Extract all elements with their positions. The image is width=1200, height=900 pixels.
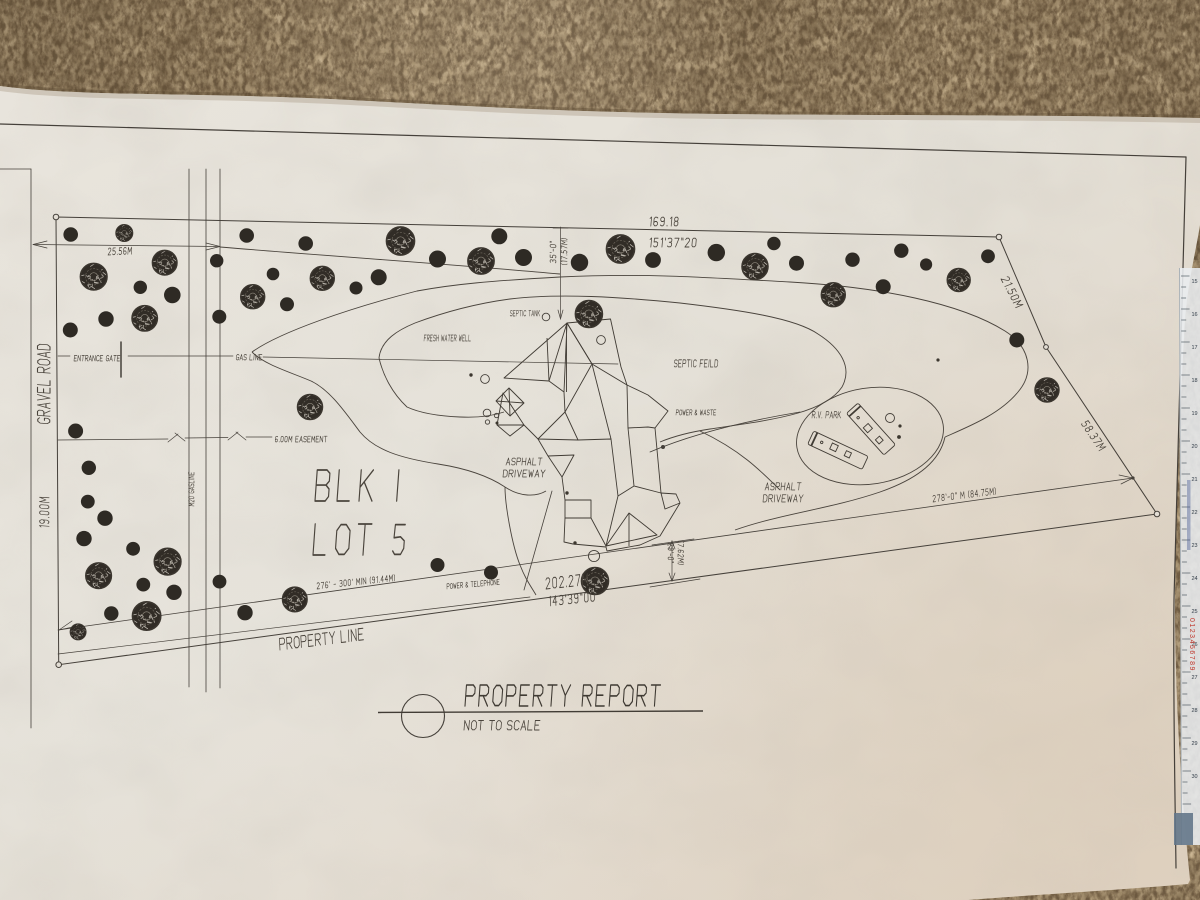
svg-text:18: 18 (1192, 378, 1198, 384)
svg-text:17: 17 (1192, 345, 1198, 351)
svg-text:23: 23 (1192, 543, 1198, 549)
svg-text:19: 19 (1192, 411, 1198, 417)
svg-text:30: 30 (1192, 774, 1198, 780)
svg-text:24: 24 (1192, 576, 1198, 582)
svg-text:25: 25 (1192, 609, 1198, 615)
svg-text:28: 28 (1192, 708, 1198, 714)
svg-text:27: 27 (1192, 675, 1198, 681)
svg-text:21: 21 (1192, 477, 1198, 483)
svg-text:29: 29 (1192, 741, 1198, 747)
svg-text:22: 22 (1192, 510, 1198, 516)
svg-text:15: 15 (1192, 279, 1198, 285)
svg-text:16: 16 (1192, 312, 1198, 318)
svg-text:20: 20 (1192, 444, 1198, 450)
svg-text:0123456789: 0123456789 (1188, 618, 1195, 672)
